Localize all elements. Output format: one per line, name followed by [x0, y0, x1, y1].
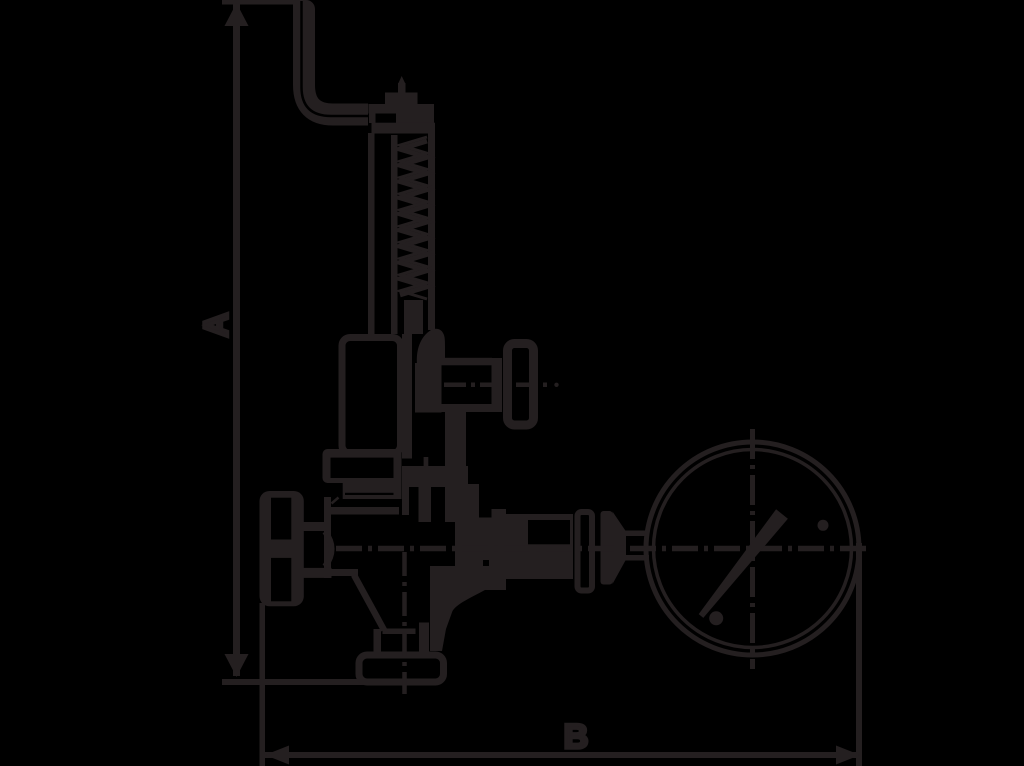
svg-text:B: B — [564, 718, 589, 756]
svg-text:A: A — [198, 313, 236, 338]
